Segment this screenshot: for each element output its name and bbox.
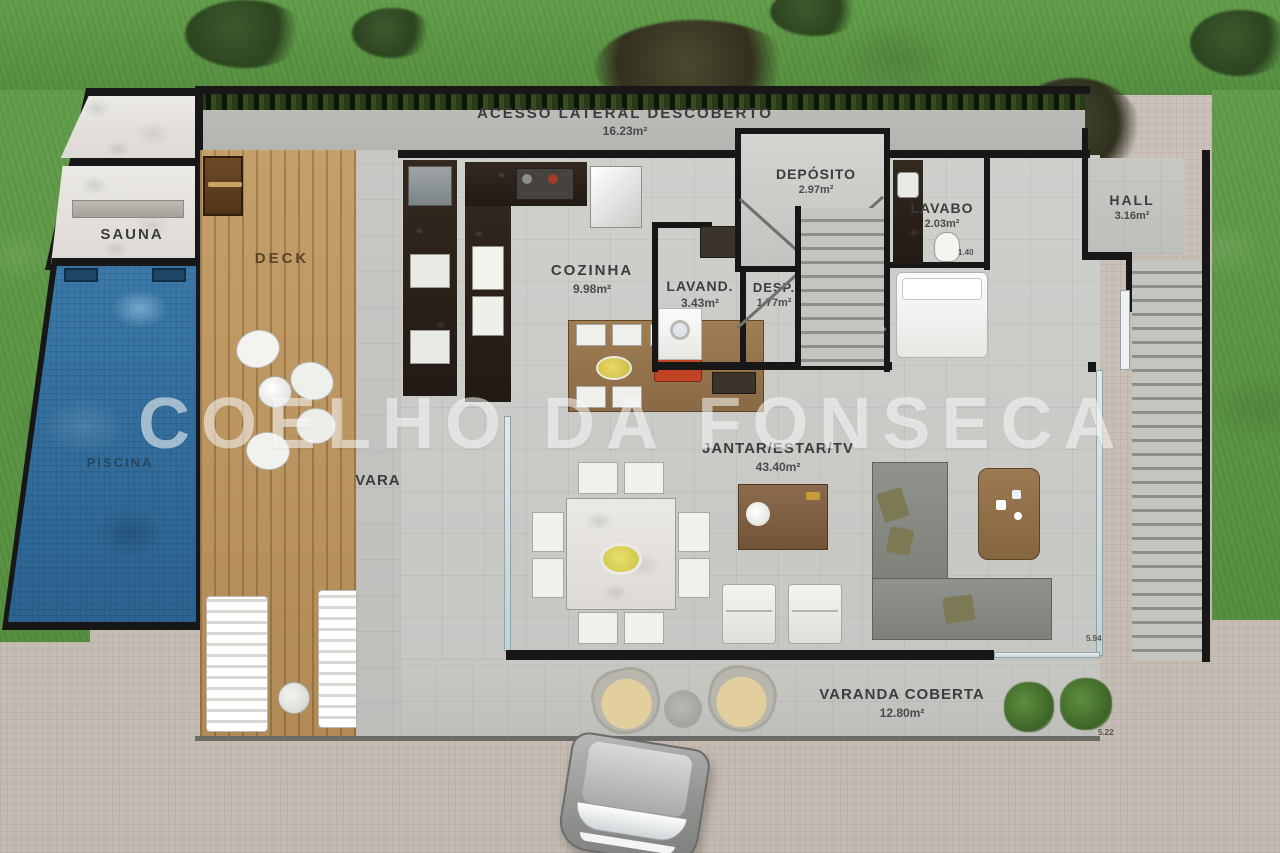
dining-chair — [624, 462, 664, 494]
dining-chair — [678, 512, 710, 552]
living-right-wall — [1088, 362, 1096, 372]
room-label-sauna: SAUNA — [100, 226, 163, 243]
living-front-wall — [506, 650, 994, 660]
veranda-side-table — [664, 690, 702, 728]
room-area-varanda-front: 12.80m² — [880, 706, 925, 720]
lavabo-right-wall — [984, 152, 990, 270]
room-label-lavanderia: LAVAND. — [666, 278, 733, 294]
room-area-deposito: 2.97m² — [799, 184, 834, 196]
sideboard-lamp — [746, 502, 770, 526]
dimension-label: 5.22 — [1098, 728, 1114, 737]
dining-chair — [578, 612, 618, 644]
coffee-table-decor — [996, 500, 1006, 510]
cooktop-burner — [522, 174, 532, 184]
counter-sink-module — [472, 296, 504, 336]
armchair — [788, 584, 842, 644]
deposito-right-wall — [884, 128, 890, 372]
daybed-pillow — [902, 278, 982, 300]
entry-right-wall — [1202, 150, 1210, 662]
armchair-seatline — [726, 610, 772, 612]
tree-icon — [185, 0, 305, 68]
kitchen-appliance — [410, 330, 450, 364]
room-label-acesso: ACESSO LATERAL DESCOBERTO — [477, 105, 773, 122]
entry-steps — [1132, 260, 1204, 660]
sauna-bench — [72, 200, 184, 218]
sofa-chaise — [872, 462, 948, 582]
island-stool — [612, 324, 642, 346]
island-stool — [576, 324, 606, 346]
dining-chair — [532, 558, 564, 598]
fridge — [590, 166, 642, 228]
room-label-hall: HALL — [1109, 192, 1154, 208]
coffee-table-decor — [1012, 490, 1021, 499]
counter-sink-module — [472, 246, 504, 290]
dining-chair — [678, 558, 710, 598]
tree-icon — [352, 8, 432, 58]
dining-chair — [578, 462, 618, 494]
pool-step — [152, 268, 186, 282]
hall-bottom-wall — [1082, 252, 1132, 260]
cooktop-burner — [548, 174, 558, 184]
lavabo-sink — [897, 172, 919, 198]
pool-step — [64, 268, 98, 282]
island-plate — [596, 356, 632, 380]
room-area-acesso: 16.23m² — [603, 124, 648, 138]
lounger-side-table — [278, 682, 310, 714]
room-label-deck: DECK — [255, 250, 310, 267]
armchair — [722, 584, 776, 644]
laundry-counter — [700, 226, 738, 258]
living-front-glazing — [994, 652, 1100, 658]
sun-lounger — [206, 596, 268, 732]
potted-plant — [1004, 682, 1054, 732]
room-area-cozinha: 9.98m² — [573, 282, 611, 296]
tree-icon — [1190, 10, 1280, 76]
staircase — [800, 208, 884, 366]
coffee-table — [978, 468, 1040, 560]
floor-plan: ACESSO LATERAL DESCOBERTO 16.23m² SAUNA … — [0, 0, 1280, 853]
potted-plant — [1060, 678, 1112, 730]
sauna-door-handle — [208, 182, 242, 187]
pantry-wall — [740, 266, 802, 272]
room-label-lavabo: LAVABO — [910, 200, 973, 216]
dining-centerpiece — [600, 543, 642, 575]
sofa-pillow — [942, 594, 975, 624]
kitchen-sink — [408, 166, 452, 206]
washing-machine-door — [670, 320, 690, 340]
perimeter-wall — [195, 86, 1090, 94]
sideboard-decor — [806, 492, 820, 500]
lawn-right — [1212, 90, 1280, 620]
coffee-table-decor — [1014, 512, 1022, 520]
room-label-deposito: DEPÓSITO — [776, 166, 856, 182]
room-label-cozinha: COZINHA — [551, 262, 633, 279]
room-label-varanda-front: VARANDA COBERTA — [819, 686, 985, 703]
watermark: COELHO DA FONSECA — [138, 383, 1118, 465]
pantry-wall — [740, 266, 746, 366]
room-area-lavabo: 2.03m² — [925, 218, 960, 230]
room-area-hall: 3.16m² — [1115, 210, 1150, 222]
house-front-edge — [195, 736, 1100, 741]
stair-wall — [795, 206, 801, 368]
car — [548, 729, 721, 853]
dimension-label: 5.94 — [1086, 634, 1102, 643]
dining-chair — [624, 612, 664, 644]
armchair-seatline — [792, 610, 838, 612]
toilet — [934, 232, 960, 262]
kitchen-appliance — [410, 254, 450, 288]
cooktop — [516, 168, 574, 200]
dimension-label: 1.40 — [958, 248, 974, 257]
entry-door — [1120, 290, 1130, 370]
dining-chair — [532, 512, 564, 552]
